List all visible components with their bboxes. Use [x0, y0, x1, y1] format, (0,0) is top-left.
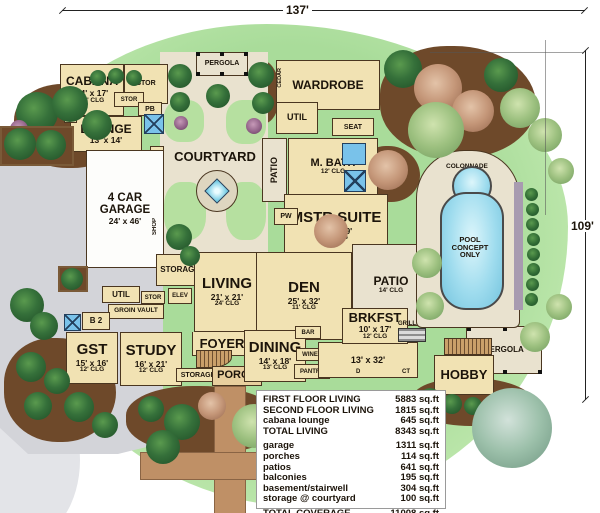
tree — [180, 246, 200, 266]
shrub — [108, 68, 124, 84]
table-row: storage @ courtyard100 sq.ft — [263, 494, 439, 505]
tree — [61, 268, 83, 290]
tree — [170, 92, 190, 112]
lot-line — [430, 52, 583, 53]
groin-vault: GROIN VAULT — [108, 304, 164, 319]
hedge — [526, 278, 539, 291]
tree — [16, 352, 46, 382]
floor-plan: PERGOLA CABANA 14' x 17' 12' CLG STOR ST… — [0, 0, 600, 513]
tree — [92, 412, 118, 438]
pergola-posts — [196, 52, 200, 56]
spa-fixture — [144, 114, 164, 134]
tree — [44, 368, 70, 394]
powder-room: PW — [274, 208, 298, 225]
tree — [408, 102, 464, 158]
tree — [314, 214, 348, 248]
hobby-stairs — [444, 338, 492, 355]
lot-line — [545, 40, 546, 215]
room-bath2: B 2 — [82, 312, 110, 330]
height-dimension: 109' — [568, 220, 597, 232]
tree — [368, 150, 408, 190]
area-summary-table: FIRST FLOOR LIVING5883 sq.ft SECOND FLOO… — [256, 390, 446, 509]
room-util-north: UTIL — [276, 102, 318, 134]
tree — [484, 58, 518, 92]
tree — [412, 248, 442, 278]
room-living: LIVING 21' x 21' 24' CLG — [194, 252, 260, 332]
pool-concept-label: POOL CONCEPT ONLY — [442, 236, 498, 259]
hedge — [527, 263, 540, 276]
room-garage: 4 CAR GARAGE 24' x 46' — [86, 150, 164, 268]
dimension-tick — [582, 396, 589, 403]
room-guest: GST 15' x 16' 12' CLG — [66, 332, 118, 384]
tree — [52, 86, 88, 122]
grille-counter — [398, 328, 426, 342]
room-pergola-top: PERGOLA — [196, 52, 248, 76]
room-stor-south: STOR — [141, 291, 165, 304]
hedge — [526, 218, 539, 231]
dryer-label: D — [356, 369, 360, 375]
seat-nook: SEAT — [332, 118, 374, 136]
planter-circle — [206, 84, 230, 108]
shrub — [174, 116, 188, 130]
hedge — [527, 233, 540, 246]
tree — [548, 158, 574, 184]
hedge — [525, 188, 538, 201]
shower-fixture — [344, 170, 366, 192]
room-hobby: HOBBY — [434, 355, 494, 395]
tree — [248, 62, 274, 88]
hedge — [526, 203, 539, 216]
table-row-total: TOTAL COVERAGE11008 sq.ft — [263, 509, 439, 513]
shrub — [90, 70, 106, 86]
room-side-patio: PATIO — [262, 138, 287, 202]
bar: BAR — [295, 326, 321, 339]
tree — [416, 292, 444, 320]
hedge — [527, 248, 540, 261]
tree — [82, 110, 112, 140]
tree — [24, 392, 52, 420]
shrub — [246, 118, 262, 134]
tree — [138, 396, 164, 422]
tree — [146, 430, 180, 464]
dimension-tick — [581, 7, 588, 14]
table-row: porches114 sq.ft — [263, 452, 439, 463]
courtyard-label: COURTYARD — [160, 150, 270, 163]
table-row: FIRST FLOOR LIVING5883 sq.ft — [263, 395, 439, 406]
tree — [520, 322, 550, 352]
tree — [64, 392, 94, 422]
dimension-line-top — [62, 10, 585, 11]
tree — [36, 130, 66, 160]
room-study: STUDY 16' x 21' 12' CLG — [120, 332, 182, 386]
shrub — [126, 70, 142, 86]
ct-label: CT — [402, 369, 410, 375]
elevator: ELEV — [168, 288, 192, 304]
table-row: TOTAL LIVING8343 sq.ft — [263, 427, 439, 438]
tree — [168, 64, 192, 88]
tree — [546, 294, 572, 320]
fountain — [196, 170, 238, 212]
tree — [30, 312, 58, 340]
cedar-closet-label: CEDAR — [278, 68, 284, 88]
tree — [252, 92, 274, 114]
room-util-south: UTIL — [102, 286, 140, 303]
tree — [472, 388, 552, 468]
tree — [4, 128, 36, 160]
bath2-shower-fixture — [64, 314, 81, 331]
tree — [198, 392, 226, 420]
shop-label: SHOP — [152, 218, 158, 235]
tub-fixture — [342, 143, 366, 165]
width-dimension: 137' — [283, 4, 312, 16]
planting-strip — [514, 182, 523, 310]
hedge — [525, 293, 538, 306]
